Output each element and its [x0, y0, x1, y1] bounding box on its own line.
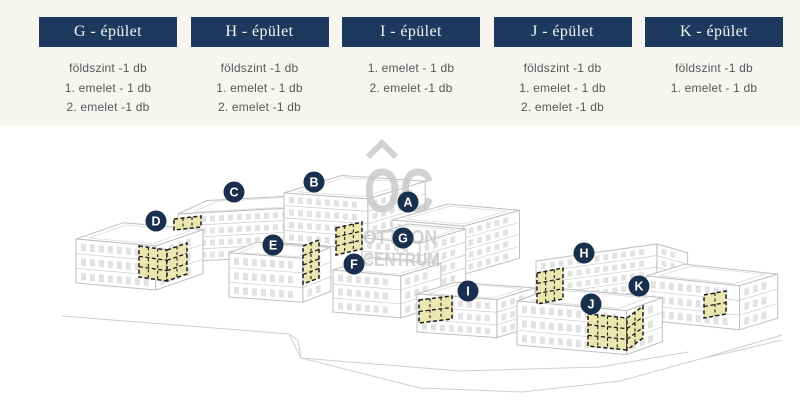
availability-line: 1. emelet - 1 db [342, 59, 480, 79]
availability-line: 2. emelet -1 db [39, 98, 177, 118]
building-badge-H[interactable]: H [574, 243, 595, 264]
watermark-logo: OC [364, 157, 434, 226]
highlight-panel-i [419, 296, 452, 323]
badge-letter: B [309, 176, 318, 190]
building-tab-I[interactable]: I - épület [342, 17, 480, 47]
availability-line: 1. emelet - 1 db [494, 79, 632, 99]
building-badge-E[interactable]: E [263, 235, 284, 256]
badge-letter: G [398, 232, 408, 246]
availability-line: 1. emelet - 1 db [191, 79, 329, 99]
site-plan-illustration: OC OTTHON CENTRUM ABCDEFGHIJK [0, 125, 800, 404]
availability-line: földszint -1 db [39, 59, 177, 79]
highlight-panel-d2 [167, 243, 187, 281]
availability-line: földszint -1 db [645, 59, 783, 79]
availability-list-G: földszint -1 db1. emelet - 1 db2. emelet… [39, 59, 177, 118]
building-badge-A[interactable]: A [398, 192, 419, 213]
availability-band: G - épületföldszint -1 db1. emelet - 1 d… [0, 0, 800, 125]
highlight-panel-j1 [588, 314, 627, 350]
badge-letter: K [634, 280, 643, 294]
highlight-panel-k [704, 291, 726, 318]
building-badge-D[interactable]: D [146, 211, 167, 232]
availability-line: földszint -1 db [494, 59, 632, 79]
badge-letter: D [151, 215, 160, 229]
building-badge-K[interactable]: K [629, 276, 650, 297]
badge-letter: F [350, 258, 358, 272]
availability-line: 2. emelet -1 db [494, 98, 632, 118]
availability-line: földszint -1 db [191, 59, 329, 79]
building-badge-B[interactable]: B [304, 172, 325, 193]
availability-line: 2. emelet -1 db [342, 79, 480, 99]
availability-list-H: földszint -1 db1. emelet - 1 db2. emelet… [191, 59, 329, 118]
highlight-panel-e [303, 240, 319, 284]
building-column-H: H - épületföldszint -1 db1. emelet - 1 d… [191, 0, 329, 125]
watermark-line2: CENTRUM [363, 250, 440, 271]
availability-line: 1. emelet - 1 db [645, 79, 783, 99]
badge-letter: J [588, 298, 595, 312]
building-tab-J[interactable]: J - épület [494, 17, 632, 47]
badge-letter: C [229, 186, 238, 200]
availability-line: 1. emelet - 1 db [39, 79, 177, 99]
availability-line: 2. emelet -1 db [191, 98, 329, 118]
building-tab-G[interactable]: G - épület [39, 17, 177, 47]
building-badge-I[interactable]: I [458, 281, 479, 302]
building-badge-G[interactable]: G [393, 228, 414, 249]
highlight-panel-d1 [139, 246, 167, 281]
building-tab-K[interactable]: K - épület [645, 17, 783, 47]
availability-list-I: 1. emelet - 1 db2. emelet -1 db [342, 59, 480, 98]
watermark-caret-icon [368, 143, 396, 157]
building-badge-J[interactable]: J [581, 294, 602, 315]
building-column-J: J - épületföldszint -1 db1. emelet - 1 d… [494, 0, 632, 125]
badge-letter: E [269, 239, 277, 253]
badge-letter: I [466, 285, 469, 299]
highlight-panel-h [537, 268, 563, 304]
badge-letter: A [403, 196, 412, 210]
building-column-G: G - épületföldszint -1 db1. emelet - 1 d… [39, 0, 177, 125]
building-column-K: K - épületföldszint -1 db1. emelet - 1 d… [645, 0, 783, 125]
building-badge-F[interactable]: F [344, 254, 365, 275]
availability-list-J: földszint -1 db1. emelet - 1 db2. emelet… [494, 59, 632, 118]
availability-list-K: földszint -1 db1. emelet - 1 db [645, 59, 783, 98]
building-tab-H[interactable]: H - épület [191, 17, 329, 47]
building-badge-C[interactable]: C [224, 182, 245, 203]
building-column-I: I - épület1. emelet - 1 db2. emelet -1 d… [342, 0, 480, 125]
site-plan-area: OC OTTHON CENTRUM ABCDEFGHIJK [0, 125, 800, 404]
badge-letter: H [579, 247, 588, 261]
